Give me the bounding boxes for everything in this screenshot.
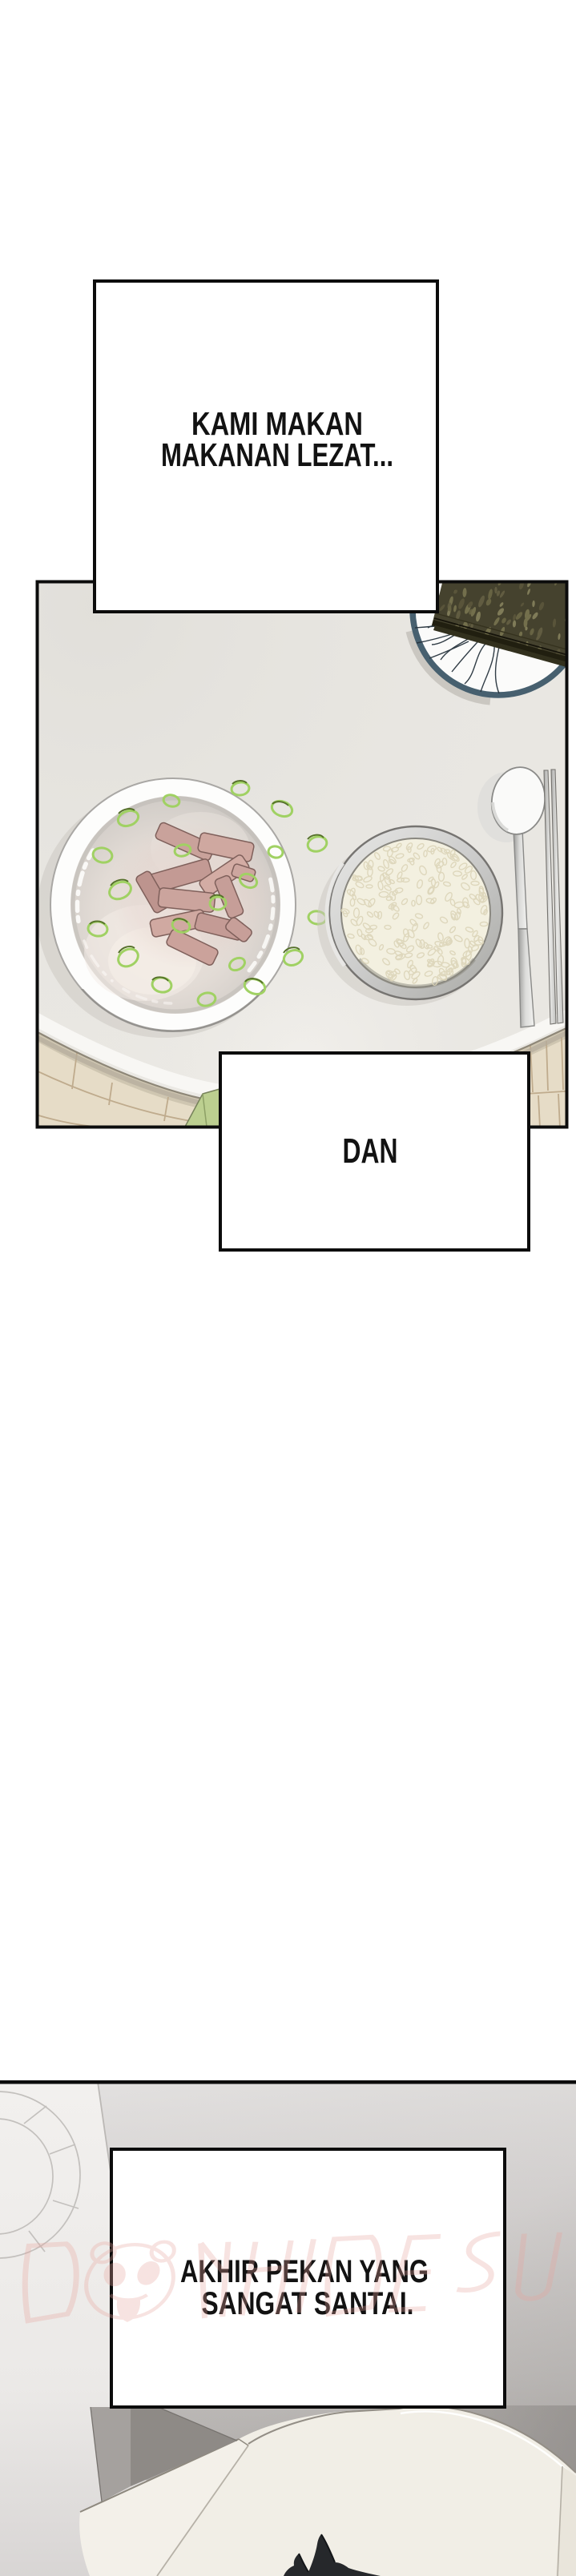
svg-text:MAKANAN LEZAT...: MAKANAN LEZAT...	[161, 436, 393, 473]
svg-text:DAN: DAN	[343, 1131, 398, 1171]
svg-text:SANGAT SANTAI.: SANGAT SANTAI.	[202, 2286, 414, 2321]
